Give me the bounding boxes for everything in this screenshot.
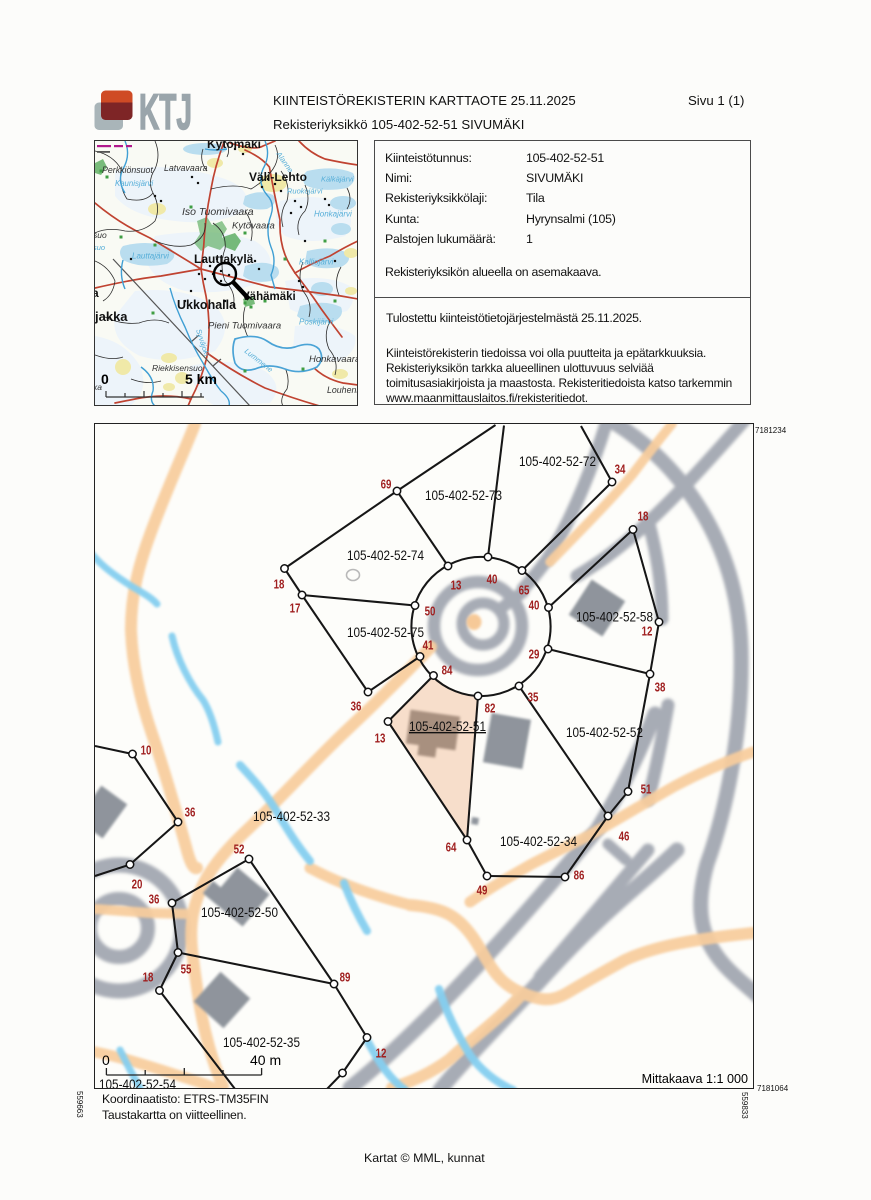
- svg-text:105-402-52-58: 105-402-52-58: [576, 610, 653, 625]
- svg-text:12: 12: [642, 624, 653, 639]
- svg-text:5 km: 5 km: [185, 371, 217, 387]
- svg-text:105-402-52-51: 105-402-52-51: [409, 719, 486, 734]
- svg-text:Ukkohalla: Ukkohalla: [177, 298, 237, 312]
- svg-text:34: 34: [615, 462, 626, 477]
- svg-text:12: 12: [376, 1046, 387, 1061]
- svg-text:105-402-52-54: 105-402-52-54: [99, 1077, 176, 1088]
- svg-text:41: 41: [423, 638, 434, 653]
- svg-text:Honkavaara: Honkavaara: [309, 354, 358, 365]
- svg-text:a: a: [95, 286, 99, 300]
- svg-text:10: 10: [141, 743, 152, 758]
- svg-text:52: 52: [234, 842, 245, 857]
- svg-text:suo: suo: [95, 230, 107, 240]
- svg-text:suo: suo: [95, 243, 105, 252]
- svg-text:13: 13: [375, 731, 386, 746]
- svg-text:Iso Tuomivaara: Iso Tuomivaara: [182, 206, 254, 218]
- svg-text:40 m: 40 m: [250, 1052, 281, 1068]
- svg-text:29: 29: [529, 647, 540, 662]
- svg-text:65: 65: [519, 583, 530, 598]
- svg-text:jakka: jakka: [95, 309, 128, 324]
- svg-text:69: 69: [381, 477, 392, 492]
- svg-text:55: 55: [181, 962, 192, 977]
- svg-text:Kaunisjärvi: Kaunisjärvi: [115, 179, 153, 188]
- svg-text:105-402-52-72: 105-402-52-72: [519, 454, 596, 469]
- svg-text:Mittakaava 1:1 000: Mittakaava 1:1 000: [642, 1072, 748, 1086]
- svg-text:18: 18: [638, 509, 649, 524]
- svg-text:50: 50: [425, 604, 436, 619]
- svg-text:40: 40: [487, 572, 498, 587]
- svg-text:KTJ: KTJ: [139, 88, 192, 133]
- svg-text:Kälkäjärvi: Kälkäjärvi: [321, 175, 354, 184]
- svg-text:105-402-52-74: 105-402-52-74: [347, 548, 424, 563]
- svg-text:105-402-52-52: 105-402-52-52: [566, 725, 643, 740]
- svg-text:105-402-52-34: 105-402-52-34: [500, 834, 577, 849]
- svg-text:82: 82: [485, 701, 496, 716]
- svg-text:Lauttajärvi: Lauttajärvi: [132, 252, 169, 261]
- svg-text:Väli-Lehto: Väli-Lehto: [249, 170, 307, 184]
- svg-text:Pieni Tuomivaara: Pieni Tuomivaara: [208, 321, 281, 332]
- svg-text:17: 17: [290, 601, 301, 616]
- svg-text:105-402-52-75: 105-402-52-75: [347, 625, 424, 640]
- svg-text:Kytömäki: Kytömäki: [207, 141, 261, 151]
- svg-text:18: 18: [143, 970, 154, 985]
- svg-text:105-402-52-73: 105-402-52-73: [425, 488, 502, 503]
- svg-text:Latvavaara: Latvavaara: [164, 163, 208, 173]
- svg-text:Ruokojärvi: Ruokojärvi: [287, 187, 323, 196]
- svg-text:18: 18: [274, 577, 285, 592]
- svg-text:35: 35: [528, 690, 539, 705]
- svg-text:89: 89: [340, 970, 351, 985]
- svg-text:20: 20: [132, 877, 143, 892]
- svg-text:105-402-52-50: 105-402-52-50: [201, 905, 278, 920]
- svg-text:Louhens: Louhens: [327, 385, 358, 395]
- svg-text:13: 13: [451, 578, 462, 593]
- svg-text:Honkajärvi: Honkajärvi: [314, 210, 352, 219]
- svg-text:Kytövaara: Kytövaara: [232, 221, 275, 232]
- svg-text:36: 36: [185, 805, 196, 820]
- svg-text:Perkkiönsuot: Perkkiönsuot: [102, 165, 153, 175]
- svg-text:84: 84: [442, 663, 453, 678]
- svg-text:0: 0: [101, 371, 109, 387]
- svg-text:Poskijärvi: Poskijärvi: [299, 318, 333, 327]
- svg-text:64: 64: [446, 840, 457, 855]
- svg-text:105-402-52-35: 105-402-52-35: [223, 1035, 300, 1050]
- svg-text:46: 46: [619, 829, 630, 844]
- svg-text:38: 38: [655, 680, 666, 695]
- svg-text:36: 36: [351, 699, 362, 714]
- svg-text:51: 51: [641, 782, 652, 797]
- svg-text:49: 49: [477, 883, 488, 898]
- svg-text:105-402-52-33: 105-402-52-33: [253, 809, 330, 824]
- svg-text:86: 86: [574, 868, 585, 883]
- svg-text:40: 40: [529, 598, 540, 613]
- svg-text:0: 0: [102, 1052, 110, 1068]
- svg-text:36: 36: [149, 892, 160, 907]
- svg-text:Kalliojärvi: Kalliojärvi: [299, 258, 333, 267]
